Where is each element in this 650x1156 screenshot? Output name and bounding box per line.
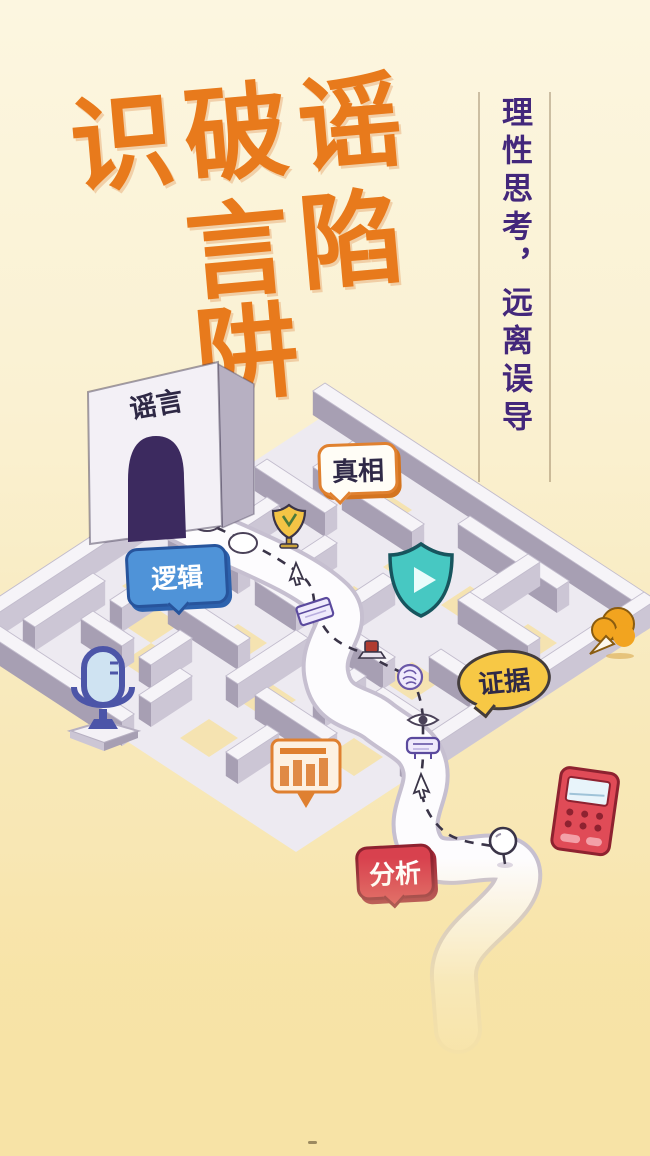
badge-evidence: 证据 (454, 645, 554, 714)
badge-analysis: 分析 (355, 843, 436, 901)
microphone-icon (58, 645, 146, 753)
search-bubble-icon (192, 509, 222, 531)
eye-icon (408, 715, 438, 726)
anti-rumor-poster: 识破谣 言陷阱 理性思考，远离误导 (0, 0, 650, 1156)
shield-play-icon (384, 540, 458, 620)
calculator-icon (540, 762, 628, 864)
book-icon (296, 597, 334, 626)
speech-ellipse-icon (229, 533, 257, 553)
trophy-icon (273, 505, 305, 548)
title-line-1: 识破谣 (66, 60, 493, 200)
poster-title: 识破谣 言陷阱 (70, 78, 490, 398)
magnifier-icon (490, 828, 516, 868)
gate-arch (128, 436, 186, 542)
badge-logic: 逻辑 (124, 543, 229, 608)
badge-logic-label: 逻辑 (150, 556, 204, 596)
footer-dash-mark (308, 1141, 317, 1144)
badge-evidence-label: 证据 (476, 659, 532, 701)
signboard-icon (407, 738, 439, 759)
badge-logic-tail (167, 593, 190, 616)
cursor-icon (290, 563, 303, 585)
brain-icon (398, 665, 422, 689)
bar-chart-icon (266, 732, 346, 818)
title-line-2: 言陷阱 (182, 177, 499, 410)
megaphone-icon (580, 602, 644, 664)
stamp-icon (359, 641, 385, 658)
badge-analysis-label: 分析 (368, 852, 422, 892)
bottom-fade (0, 858, 650, 1156)
badge-truth: 真相 (317, 442, 399, 497)
hand-cursor-icon (414, 774, 429, 798)
vertical-slogan: 理性思考，远离误导 (478, 92, 551, 482)
